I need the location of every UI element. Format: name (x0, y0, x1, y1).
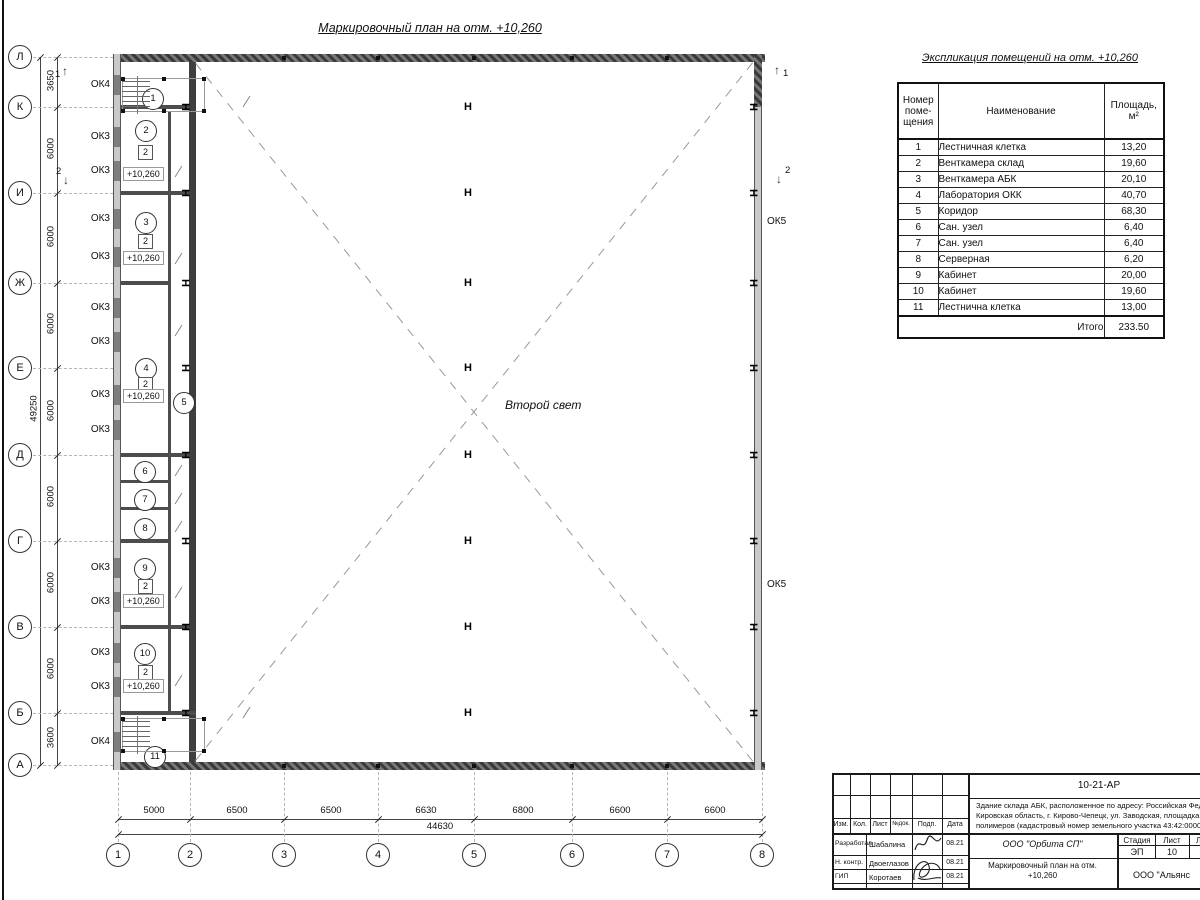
schedule-table-body: 1Лестничная клетка13,202Венткамера склад… (898, 139, 1164, 316)
window-label: ОК3 (70, 389, 110, 400)
dimension-label: 6630 (402, 805, 450, 816)
room-area-cell: 6,40 (1104, 220, 1164, 236)
column-mark (121, 77, 125, 81)
section-label: 2 (785, 165, 790, 176)
column-mark (282, 764, 286, 768)
column-mark (162, 717, 166, 721)
role-label: Н. контр. (835, 859, 866, 866)
titleblock-line (870, 773, 871, 833)
titleblock-line (832, 883, 968, 884)
column-mark (376, 56, 380, 60)
titleblock-line (942, 773, 943, 833)
col-axis-line (284, 772, 285, 842)
room-area-cell: 19,60 (1104, 156, 1164, 172)
room-number-cell: 9 (898, 268, 938, 284)
door-leaf (175, 675, 183, 687)
room-number-cell: 11 (898, 300, 938, 317)
schedule-row: 3Венткамера АБК20,10 (898, 172, 1164, 188)
dimension-label: 6000 (46, 300, 57, 348)
titleblock-line (968, 858, 1200, 859)
schedule-header-row: Номер поме- щения Наименование Площадь, … (898, 83, 1164, 139)
row-axis-line (33, 107, 113, 108)
window-label: ОК3 (70, 424, 110, 435)
room-number-cell: 6 (898, 220, 938, 236)
titleblock-line (1117, 845, 1200, 846)
steel-column-mark: Н (179, 537, 191, 545)
column-mark (121, 109, 125, 113)
steel-column-mark: Н (179, 189, 191, 197)
schedule-row: 11Лестнична клетка13,00 (898, 300, 1164, 317)
type-mark: 2 (138, 145, 153, 160)
room-area-cell: 20,00 (1104, 268, 1164, 284)
room-area-cell: 13,00 (1104, 300, 1164, 317)
schedule-row: 6Сан. узел6,40 (898, 220, 1164, 236)
row-axis-bubble: В (8, 615, 32, 639)
room-area-cell: 40,70 (1104, 188, 1164, 204)
door-leaf (243, 707, 251, 719)
column-mark (202, 749, 206, 753)
type-mark: 2 (138, 665, 153, 680)
window-label: ОК4 (70, 79, 110, 90)
col-axis-bubble: 3 (272, 843, 296, 867)
titleblock-line (968, 798, 1200, 799)
door-leaf (175, 493, 183, 505)
titleblock-line (890, 773, 891, 833)
col-axis-bubble: 6 (560, 843, 584, 867)
column-mark (282, 56, 286, 60)
col-axis-line (667, 772, 668, 842)
dimension-label: 6500 (213, 805, 261, 816)
window-opening (114, 161, 120, 181)
dimension-label: 3650 (46, 57, 57, 105)
steel-column-mark: Н (747, 451, 759, 459)
room-area-cell: 19,60 (1104, 284, 1164, 300)
window-opening (114, 385, 120, 405)
row-axis-line (33, 627, 113, 628)
dimension-label: 6800 (499, 805, 547, 816)
col-axis-bubble: 5 (462, 843, 486, 867)
section-label: 2 (56, 166, 61, 177)
stage-value-cell: 10 (1155, 847, 1189, 857)
role-date: 08.21 (942, 873, 968, 880)
room-number-cell: 4 (898, 188, 938, 204)
schedule-total-value: 233.50 (1104, 316, 1164, 338)
titleblock-line (832, 855, 968, 856)
titleblock-line (912, 773, 913, 833)
room-number-bubble: 3 (135, 212, 157, 234)
drawing-sheet: { "sheet": { "plan_title": "Маркировочны… (0, 0, 1200, 900)
role-label: Разработал (835, 840, 866, 847)
room-number-bubble: 10 (134, 643, 156, 665)
door-leaf (175, 253, 183, 265)
col-axis-line (572, 772, 573, 842)
col-axis-line (474, 772, 475, 842)
dimension-label: 6600 (596, 805, 644, 816)
room-number-bubble: 5 (173, 392, 195, 414)
row-axis-bubble: И (8, 181, 32, 205)
column-mark (570, 56, 574, 60)
room-name-cell: Кабинет (938, 284, 1104, 300)
document-number: 10-21-АР (968, 780, 1200, 791)
titleblock-line (832, 869, 968, 870)
room-name-cell: Венткамера склад (938, 156, 1104, 172)
titleblock-line (832, 795, 968, 796)
column-mark (202, 717, 206, 721)
column-mark (472, 56, 476, 60)
schedule-header-area: Площадь, м² (1104, 83, 1164, 139)
column-mark (472, 764, 476, 768)
window-opening (114, 558, 120, 578)
steel-column-mark: Н (464, 277, 472, 289)
schedule-total-row: Итого 233.50 (898, 316, 1164, 338)
room-area-cell: 13,20 (1104, 139, 1164, 156)
col-axis-bubble: 1 (106, 843, 130, 867)
column-mark (665, 56, 669, 60)
stair-arrow-line (137, 76, 138, 114)
steel-column-mark: Н (464, 535, 472, 547)
door-leaf (175, 325, 183, 337)
steel-column-mark: Н (747, 103, 759, 111)
dimension-label: 6000 (46, 645, 57, 693)
room-number-cell: 10 (898, 284, 938, 300)
level-mark: +10,260 (123, 679, 164, 693)
signature (910, 852, 944, 886)
schedule-row: 5Коридор68,30 (898, 204, 1164, 220)
room-name-cell: Коридор (938, 204, 1104, 220)
dimension-label: 3600 (46, 714, 57, 762)
titleblock-header-cell: Подп. (912, 821, 942, 828)
row-axis-line (33, 283, 113, 284)
titleblock-header-cell: Дата (940, 821, 970, 828)
steel-column-mark: Н (464, 449, 472, 461)
room-area-cell: 6,20 (1104, 252, 1164, 268)
schedule-row: 8Серверная6,20 (898, 252, 1164, 268)
col-axis-bubble: 4 (366, 843, 390, 867)
room-number-bubble: 7 (134, 489, 156, 511)
row-axis-bubble: Д (8, 443, 32, 467)
room-number-cell: 3 (898, 172, 938, 188)
window-label: ОК5 (767, 216, 786, 227)
steel-column-mark: Н (747, 279, 759, 287)
level-mark: +10,260 (123, 389, 164, 403)
window-label: ОК3 (70, 596, 110, 607)
room-name-cell: Сан. узел (938, 236, 1104, 252)
project-description-line: Кировская область, г. Кирово-Чепецк, ул.… (976, 811, 1200, 820)
door-leaf (243, 96, 251, 108)
row-axis-line (33, 455, 113, 456)
row-axis-line (33, 368, 113, 369)
steel-column-mark: Н (179, 709, 191, 717)
level-mark: +10,260 (123, 251, 164, 265)
room-area-cell: 6,40 (1104, 236, 1164, 252)
section-arrow: ↓ (776, 172, 782, 186)
stair-tread (122, 91, 150, 92)
steel-column-mark: Н (747, 364, 759, 372)
row-axis-bubble: Л (8, 45, 32, 69)
stair-tread (122, 101, 150, 102)
dimension-label: 6500 (307, 805, 355, 816)
col-axis-line (378, 772, 379, 842)
column-mark (202, 109, 206, 113)
steel-column-mark: Н (464, 621, 472, 633)
window-label: ОК3 (70, 251, 110, 262)
row-axis-line (33, 765, 113, 766)
stair-tread (122, 736, 150, 737)
stage-header-cell: Лист (1155, 836, 1189, 845)
schedule-table: Номер поме- щения Наименование Площадь, … (897, 82, 1165, 339)
steel-column-mark: Н (747, 709, 759, 717)
column-mark (665, 764, 669, 768)
stage-header-cell: Стадия (1119, 836, 1155, 845)
room-number-bubble: 9 (134, 558, 156, 580)
room-name-cell: Сан. узел (938, 220, 1104, 236)
dimension-label: 6000 (46, 387, 57, 435)
column-mark (162, 77, 166, 81)
role-date: 08.21 (942, 840, 968, 847)
stair-tread (122, 81, 150, 82)
design-org-name: ООО "Орбита СП" (968, 839, 1117, 849)
titleblock-line (832, 818, 968, 819)
role-date: 08.21 (942, 859, 968, 866)
schedule-row: 2Венткамера склад19,60 (898, 156, 1164, 172)
titleblock-border (832, 773, 834, 890)
section-label: 1 (783, 68, 788, 79)
window-opening (114, 298, 120, 318)
room-number-cell: 7 (898, 236, 938, 252)
window-label: ОК3 (70, 336, 110, 347)
room-name-cell: Серверная (938, 252, 1104, 268)
section-label: 1 (55, 69, 60, 80)
door-leaf (175, 521, 183, 533)
steel-column-mark: Н (464, 362, 472, 374)
window-label: ОК3 (70, 302, 110, 313)
section-arrow: ↑ (774, 63, 780, 77)
role-name: Коротаев (869, 873, 912, 882)
row-axis-bubble: Г (8, 529, 32, 553)
window-opening (114, 732, 120, 752)
schedule-header-number: Номер поме- щения (898, 83, 938, 139)
dimension-label: 6600 (691, 805, 739, 816)
role-name: Шабалина (869, 840, 912, 849)
steel-column-mark: Н (464, 101, 472, 113)
stair-tread (122, 726, 150, 727)
schedule-row: 9Кабинет20,00 (898, 268, 1164, 284)
room-number-cell: 1 (898, 139, 938, 156)
titleblock-line (832, 833, 1200, 835)
titleblock-border (832, 773, 1200, 775)
room-name-cell: Венткамера АБК (938, 172, 1104, 188)
window-label: ОК5 (767, 579, 786, 590)
row-axis-bubble: К (8, 95, 32, 119)
room-number-cell: 5 (898, 204, 938, 220)
room-number-cell: 2 (898, 156, 938, 172)
section-arrow: ↑ (62, 64, 68, 78)
stair-tread (122, 86, 150, 87)
row-axis-bubble: Е (8, 356, 32, 380)
room-number-bubble: 8 (134, 518, 156, 540)
role-name: Двоеглазов (869, 859, 912, 868)
client-org-name: ООО "Альянс (1133, 870, 1200, 880)
window-opening (114, 420, 120, 440)
type-mark: 2 (138, 579, 153, 594)
stair-tread (122, 741, 150, 742)
window-label: ОК3 (70, 131, 110, 142)
titleblock-line (1117, 833, 1119, 890)
stair-tread (122, 721, 150, 722)
room-area-cell: 20,10 (1104, 172, 1164, 188)
type-mark: 2 (138, 234, 153, 249)
col-axis-bubble: 8 (750, 843, 774, 867)
column-mark (162, 749, 166, 753)
window-opening (114, 127, 120, 147)
steel-column-mark: Н (747, 189, 759, 197)
steel-column-mark: Н (179, 364, 191, 372)
col-axis-bubble: 7 (655, 843, 679, 867)
titleblock-line (850, 773, 851, 833)
stage-value-cell: ЭП (1119, 847, 1155, 857)
steel-column-mark: Н (179, 451, 191, 459)
stair-tread (122, 96, 150, 97)
sheet-title-cell: Маркировочный план на отм. +10,260 (968, 861, 1117, 880)
column-mark (121, 749, 125, 753)
level-mark: +10,260 (123, 594, 164, 608)
project-description-line: Здание склада АБК, расположенное по адре… (976, 801, 1200, 810)
window-opening (114, 332, 120, 352)
room-name-cell: Лестничная клетка (938, 139, 1104, 156)
window-opening (114, 247, 120, 267)
steel-column-mark: Н (747, 537, 759, 545)
dimension-label: 6000 (46, 473, 57, 521)
dimension-total-label: 49250 (29, 385, 40, 433)
column-mark (376, 764, 380, 768)
door-leaf (175, 166, 183, 178)
window-label: ОК3 (70, 165, 110, 176)
dimension-label: 5000 (130, 805, 178, 816)
window-opening (114, 209, 120, 229)
row-axis-line (33, 193, 113, 194)
signature (913, 834, 943, 854)
dimension-label: 6000 (46, 559, 57, 607)
schedule-row: 4Лаборатория ОКК40,70 (898, 188, 1164, 204)
steel-column-mark: Н (464, 707, 472, 719)
titleblock-border (832, 888, 1200, 890)
schedule-total-label: Итого (898, 316, 1104, 338)
window-label: ОК4 (70, 736, 110, 747)
column-mark (162, 109, 166, 113)
window-opening (114, 75, 120, 95)
room-number-bubble: 2 (135, 120, 157, 142)
titleblock-line (866, 833, 867, 890)
window-opening (114, 592, 120, 612)
stage-value-cell: 1 (1189, 847, 1200, 857)
column-mark (121, 717, 125, 721)
room-name-cell: Лестнична клетка (938, 300, 1104, 317)
window-opening (114, 643, 120, 663)
window-label: ОК3 (70, 213, 110, 224)
row-axis-bubble: А (8, 753, 32, 777)
schedule-row: 10Кабинет19,60 (898, 284, 1164, 300)
stage-header-cell: Листов (1189, 836, 1200, 845)
schedule-row: 7Сан. узел6,40 (898, 236, 1164, 252)
dimension-label: 6000 (46, 125, 57, 173)
door-leaf (175, 465, 183, 477)
window-label: ОК3 (70, 681, 110, 692)
steel-column-mark: Н (179, 623, 191, 631)
column-mark (202, 77, 206, 81)
stair-tread (122, 746, 150, 747)
stair-tread (122, 106, 150, 107)
door-leaf (175, 587, 183, 599)
room-name-cell: Кабинет (938, 268, 1104, 284)
room-number-bubble: 6 (134, 461, 156, 483)
room-number-cell: 8 (898, 252, 938, 268)
level-mark: +10,260 (123, 167, 164, 181)
dimension-total-label: 44630 (416, 821, 464, 832)
room-name-cell: Лаборатория ОКК (938, 188, 1104, 204)
window-label: ОК3 (70, 647, 110, 658)
window-label: ОК3 (70, 562, 110, 573)
dimension-label: 6000 (46, 213, 57, 261)
schedule-header-name: Наименование (938, 83, 1104, 139)
section-arrow: ↓ (63, 173, 69, 187)
row-axis-bubble: Б (8, 701, 32, 725)
steel-column-mark: Н (179, 279, 191, 287)
row-axis-bubble: Ж (8, 271, 32, 295)
steel-column-mark: Н (464, 187, 472, 199)
project-description-line: полимеров (кадастровый номер земельного … (976, 821, 1200, 830)
row-axis-line (33, 541, 113, 542)
column-mark (570, 764, 574, 768)
role-label: ГИП (835, 873, 866, 880)
window-opening (114, 677, 120, 697)
schedule-row: 1Лестничная клетка13,20 (898, 139, 1164, 156)
room-area-cell: 68,30 (1104, 204, 1164, 220)
stair-tread (122, 731, 150, 732)
col-axis-bubble: 2 (178, 843, 202, 867)
stair-arrow-line (137, 716, 138, 754)
col-axis-line (190, 772, 191, 842)
schedule-title: Экспликация помещений на отм. +10,260 (897, 52, 1163, 64)
steel-column-mark: Н (747, 623, 759, 631)
